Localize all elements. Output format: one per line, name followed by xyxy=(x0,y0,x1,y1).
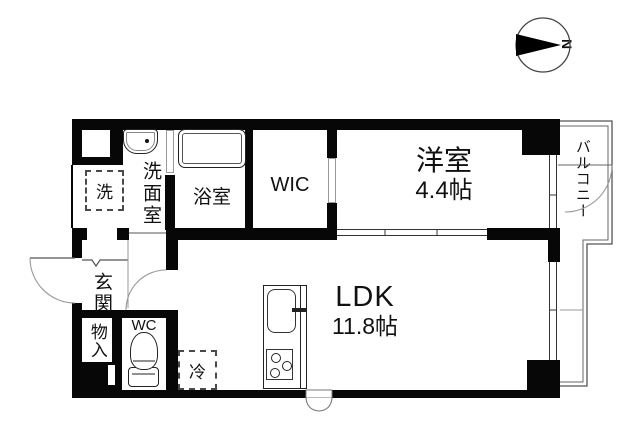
wall-segment xyxy=(487,228,548,240)
ldk-label: LDK xyxy=(315,281,415,313)
washer-label: 洗 xyxy=(96,178,113,203)
floor-plan: 洗 冷 洗面室 浴室 WIC 洋室 4.4帖 バルコニー LDK 11.8帖 玄… xyxy=(0,0,640,428)
wall-segment xyxy=(245,130,253,230)
stove-burner-icon xyxy=(270,368,280,378)
wall-segment xyxy=(112,315,122,362)
washbasin-faucet-icon xyxy=(145,139,149,143)
stove-burner-icon xyxy=(271,353,281,363)
storage-label: 物入 xyxy=(85,319,109,363)
vent-opening xyxy=(306,390,332,398)
fridge-space: 冷 xyxy=(178,350,217,390)
toilet-tank-icon xyxy=(128,367,159,387)
stove-burner-icon xyxy=(282,361,292,371)
laundry-label: 洗面室 xyxy=(136,158,164,230)
entrance-door-swing-arc xyxy=(30,258,75,303)
kitchen-counter-edge xyxy=(300,286,301,388)
wic-door-panel xyxy=(329,159,336,203)
wall-segment xyxy=(330,390,528,398)
compass-north-label: N xyxy=(558,34,576,54)
wall-segment xyxy=(327,203,337,230)
bath-label: 浴室 xyxy=(186,188,238,208)
entrance-label: 玄関 xyxy=(89,266,113,320)
wall-segment xyxy=(166,310,178,390)
compass-arrow-icon xyxy=(516,34,561,56)
wall-segment xyxy=(72,240,82,258)
wall-segment xyxy=(327,130,337,158)
wall-segment xyxy=(72,303,82,310)
washbasin-icon xyxy=(123,129,158,154)
vent-fan-icon xyxy=(306,398,332,411)
ldk-size-label: 11.8帖 xyxy=(310,313,420,339)
wic-label: WIC xyxy=(262,174,318,196)
wc-label: WC xyxy=(123,317,165,334)
bedroom-size-label: 4.4帖 xyxy=(394,178,494,204)
storage-door-slot xyxy=(108,365,115,385)
bedroom-balcony-window xyxy=(549,155,557,228)
washer-space: 洗 xyxy=(85,170,124,211)
balcony-label: バルコニー xyxy=(570,134,594,224)
fridge-label: 冷 xyxy=(189,358,206,383)
kitchen-faucet-icon xyxy=(292,308,306,312)
ldk-balcony-window xyxy=(549,262,557,360)
bathtub-icon xyxy=(178,129,246,168)
bath-door-panel xyxy=(167,131,174,173)
wall-segment xyxy=(166,240,178,270)
toilet-bowl-icon xyxy=(130,332,158,370)
hall-door-swing-arc xyxy=(126,270,166,310)
wall-segment xyxy=(71,165,73,228)
wall-segment xyxy=(548,228,560,262)
wall-segment xyxy=(165,175,175,230)
bedroom-label: 洋室 xyxy=(394,146,494,176)
